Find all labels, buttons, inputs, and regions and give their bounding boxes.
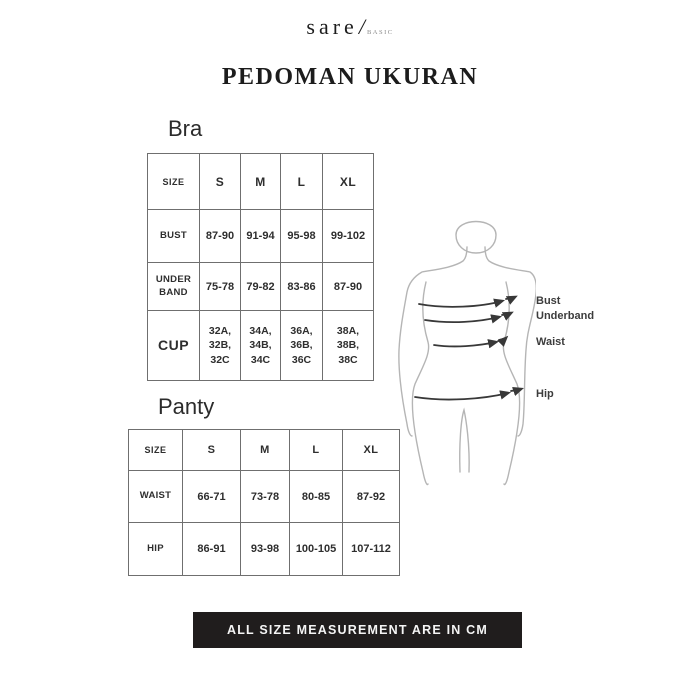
waist-arrow-icon [434,342,496,346]
bra-cup-l: 36A, 36B, 36C [281,311,323,381]
panty-size-table: SIZE S M L XL WAIST 66-71 73-78 80-85 87… [128,429,400,576]
panty-hip-xl: 107-112 [343,523,400,576]
page-title: PEDOMAN UKURAN [0,64,700,91]
footer-note: ALL SIZE MEASUREMENT ARE IN CM [227,623,488,637]
bra-col-l: L [281,154,323,210]
bust-arrow-icon [419,301,502,307]
brand-slash: / [359,14,365,40]
hip-arrow-icon [415,393,508,400]
measurement-arrows [415,297,521,400]
panty-hip-m: 93-98 [241,523,290,576]
panty-col-m: M [241,430,290,471]
bra-underband-m: 79-82 [241,263,281,311]
bra-col-size: SIZE [148,154,200,210]
panty-section-heading: Panty [158,396,214,418]
panty-row-label-hip: HIP [129,523,183,576]
bra-cup-m: 34A, 34B, 34C [241,311,281,381]
panty-hip-l: 100-105 [290,523,343,576]
panty-waist-row: WAIST 66-71 73-78 80-85 87-92 [129,471,400,523]
brand-logo: sare / BASIC [0,14,700,40]
bra-cup-xl: 38A, 38B, 38C [323,311,374,381]
bra-bust-m: 91-94 [241,210,281,263]
panty-waist-s: 66-71 [183,471,241,523]
bra-size-table: SIZE S M L XL BUST 87-90 91-94 95-98 99-… [147,153,374,381]
panty-waist-m: 73-78 [241,471,290,523]
diagram-label-hip: Hip [536,388,554,400]
brand-name: sare [306,14,357,40]
panty-header-row: SIZE S M L XL [129,430,400,471]
female-body-diagram-icon [396,214,536,489]
panty-col-s: S [183,430,241,471]
figure-outline [399,222,536,485]
bra-underband-xl: 87-90 [323,263,374,311]
panty-col-xl: XL [343,430,400,471]
bra-bust-l: 95-98 [281,210,323,263]
bra-row-label-cup: CUP [148,311,200,381]
bra-cup-row: CUP 32A, 32B, 32C 34A, 34B, 34C 36A, 36B… [148,311,374,381]
bra-col-xl: XL [323,154,374,210]
brand-subtitle: BASIC [367,29,394,36]
bra-bust-s: 87-90 [200,210,241,263]
bra-underband-s: 75-78 [200,263,241,311]
diagram-label-waist: Waist [536,336,565,348]
bra-row-label-bust: BUST [148,210,200,263]
bra-col-m: M [241,154,281,210]
bra-section-heading: Bra [168,118,202,140]
bra-row-label-underband: UNDER BAND [148,263,200,311]
panty-hip-row: HIP 86-91 93-98 100-105 107-112 [129,523,400,576]
bra-underband-row: UNDER BAND 75-78 79-82 83-86 87-90 [148,263,374,311]
bra-bust-row: BUST 87-90 91-94 95-98 99-102 [148,210,374,263]
bra-col-s: S [200,154,241,210]
underband-arrow-icon [425,317,499,322]
footer-bar: ALL SIZE MEASUREMENT ARE IN CM [193,612,522,648]
bra-underband-l: 83-86 [281,263,323,311]
bra-cup-s: 32A, 32B, 32C [200,311,241,381]
bust-arrow-tail-icon [506,297,515,299]
panty-col-l: L [290,430,343,471]
diagram-label-underband: Underband [536,310,594,322]
panty-col-size: SIZE [129,430,183,471]
bra-header-row: SIZE S M L XL [148,154,374,210]
panty-row-label-waist: WAIST [129,471,183,523]
panty-waist-xl: 87-92 [343,471,400,523]
size-guide-page: sare / BASIC PEDOMAN UKURAN Bra SIZE S M… [0,0,700,700]
panty-waist-l: 80-85 [290,471,343,523]
diagram-label-bust: Bust [536,295,560,307]
hip-arrow-tail-icon [511,389,521,391]
bra-bust-xl: 99-102 [323,210,374,263]
panty-hip-s: 86-91 [183,523,241,576]
